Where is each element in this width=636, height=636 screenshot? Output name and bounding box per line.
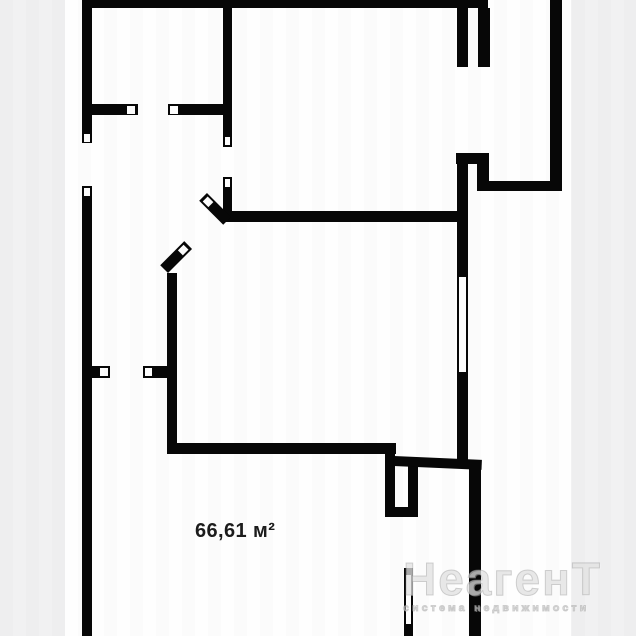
window-right: [457, 277, 468, 372]
area-label: 66,61 м²: [195, 520, 275, 543]
wall-outer-right: [550, 0, 562, 191]
wall-mid-horizontal: [223, 211, 467, 222]
watermark-brand: НеагенТ: [403, 556, 602, 602]
wall-hall-vertical: [167, 273, 177, 454]
shaft-wall-left: [385, 443, 395, 517]
floor-plan-image: 66,61 м² НеагенТ система недвижимости: [0, 0, 636, 636]
shaft-wall-right: [408, 465, 418, 517]
door-end-cap: [100, 368, 108, 376]
wall-balcony-stub-right: [478, 8, 490, 67]
wall-top: [82, 0, 488, 8]
wall-room-top: [167, 443, 396, 454]
window-bottom-cap-bottom: [404, 624, 413, 636]
door-end-cap: [84, 188, 90, 196]
door-end-cap: [225, 179, 230, 187]
wall-balcony-bottom: [477, 181, 562, 191]
neagent-watermark: НеагенТ система недвижимости: [403, 556, 602, 614]
wall-window-column-lower: [457, 372, 468, 465]
wall-left-lower: [82, 186, 92, 636]
left-margin-strip: [0, 0, 65, 636]
wall-balcony-ledge: [456, 153, 489, 164]
wall-divider-upper: [223, 0, 232, 147]
door-end-cap: [178, 245, 189, 256]
door-end-cap: [145, 368, 152, 376]
watermark-tagline: система недвижимости: [403, 603, 602, 614]
door-end-cap: [203, 196, 214, 207]
wall-balcony-step: [477, 164, 489, 181]
door-end-cap: [225, 137, 230, 145]
door-jamb-diagonal-lower: [160, 241, 192, 273]
right-margin-strip: [571, 0, 636, 636]
wall-balcony-stub-left: [457, 8, 468, 67]
door-end-cap: [84, 134, 90, 142]
door-end-cap: [127, 106, 135, 114]
wall-window-column-upper: [457, 153, 468, 277]
wall-left-upper: [82, 0, 92, 143]
door-end-cap: [170, 106, 178, 114]
